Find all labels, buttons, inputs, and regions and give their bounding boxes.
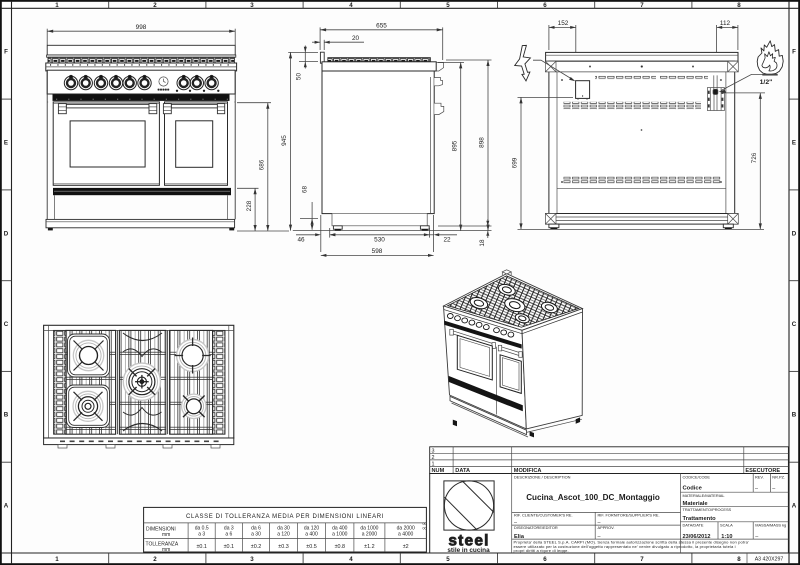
svg-text:MASSA/MASS kg: MASSA/MASS kg: [755, 523, 786, 528]
svg-text:152: 152: [558, 20, 569, 27]
svg-text:6: 6: [543, 556, 547, 563]
svg-text:F: F: [4, 49, 8, 56]
svg-text:±1.2: ±1.2: [364, 544, 374, 550]
svg-text:C: C: [4, 321, 9, 328]
svg-text:a 30: a 30: [251, 532, 261, 538]
svg-text:00: 00: [423, 522, 427, 526]
svg-text:–: –: [755, 486, 758, 492]
svg-text:1: 1: [432, 462, 435, 468]
svg-text:655: 655: [376, 22, 387, 29]
svg-text:±0.8: ±0.8: [335, 544, 345, 550]
svg-text:3: 3: [432, 448, 435, 454]
svg-text:2: 2: [153, 2, 157, 9]
svg-text:112: 112: [720, 20, 731, 27]
svg-text:1: 1: [55, 556, 59, 563]
svg-text:8: 8: [737, 556, 741, 563]
svg-text:mm: mm: [162, 532, 170, 538]
svg-text:a 3: a 3: [198, 532, 205, 538]
svg-text:mm: mm: [162, 547, 170, 553]
svg-text:7: 7: [640, 556, 644, 563]
svg-text:propri diritti a rigore di leg: propri diritti a rigore di legge.: [514, 548, 569, 553]
svg-text:8: 8: [737, 2, 741, 9]
svg-text:Codice: Codice: [683, 486, 703, 492]
svg-text:a 4000: a 4000: [398, 532, 414, 538]
svg-text:898: 898: [479, 137, 486, 148]
svg-text:A: A: [792, 503, 797, 510]
svg-text:±0.2: ±0.2: [251, 544, 261, 550]
svg-text:F: F: [792, 49, 796, 56]
svg-text:NR.PZ.: NR.PZ.: [772, 475, 785, 480]
svg-text:E: E: [4, 140, 8, 147]
svg-text:726: 726: [751, 152, 758, 163]
svg-text:68: 68: [302, 186, 309, 194]
svg-text:2: 2: [153, 556, 157, 563]
svg-text:±0.5: ±0.5: [306, 544, 316, 550]
svg-text:598: 598: [372, 248, 383, 255]
svg-text:REV.: REV.: [755, 475, 764, 480]
svg-text:686: 686: [259, 159, 266, 170]
svg-text:00: 00: [423, 527, 427, 531]
svg-text:DISEGNATORE/EDITOR: DISEGNATORE/EDITOR: [514, 525, 558, 530]
svg-text:530: 530: [374, 237, 385, 244]
svg-text:B: B: [792, 412, 797, 419]
svg-text:22: 22: [443, 237, 451, 244]
svg-text:228: 228: [246, 200, 253, 211]
svg-text:APPROV.: APPROV.: [598, 525, 615, 530]
svg-text:D: D: [4, 231, 9, 238]
svg-text:A: A: [4, 503, 9, 510]
svg-text:stile in cucina: stile in cucina: [447, 547, 490, 554]
svg-text:±0.1: ±0.1: [196, 544, 206, 550]
svg-text:895: 895: [451, 140, 458, 151]
svg-text:E: E: [792, 140, 796, 147]
svg-text:CLASSE DI TOLLERANZA MEDIA PER: CLASSE DI TOLLERANZA MEDIA PER DIMENSION…: [186, 514, 384, 520]
svg-text:7: 7: [640, 2, 644, 9]
svg-text:a 6: a 6: [225, 532, 232, 538]
svg-text:4: 4: [349, 2, 353, 9]
svg-text:C: C: [792, 321, 797, 328]
svg-text:6: 6: [543, 2, 547, 9]
svg-text:18: 18: [479, 239, 486, 247]
svg-text:a 120: a 120: [277, 532, 290, 538]
svg-text:1/2": 1/2": [760, 79, 773, 86]
svg-text:±2: ±2: [403, 544, 409, 550]
svg-text:46: 46: [297, 237, 305, 244]
svg-text:DESCRIZIONE / DESCRIPTION: DESCRIZIONE / DESCRIPTION: [514, 475, 571, 480]
svg-text:DATA/DATE: DATA/DATE: [683, 523, 704, 528]
svg-text:DIMENSIONI: DIMENSIONI: [146, 527, 176, 533]
svg-text:3: 3: [250, 2, 254, 9]
svg-text:a 400: a 400: [305, 532, 318, 538]
svg-text:4: 4: [349, 556, 353, 563]
svg-text:CODICE/CODE: CODICE/CODE: [683, 475, 711, 480]
svg-text:699: 699: [512, 157, 519, 168]
svg-text:B: B: [4, 412, 9, 419]
svg-text:D: D: [792, 231, 797, 238]
svg-text:±0.1: ±0.1: [224, 544, 234, 550]
svg-text:20: 20: [352, 35, 360, 42]
svg-text:TRATTAMENTO/PROCESS: TRATTAMENTO/PROCESS: [683, 507, 732, 512]
svg-text:2: 2: [432, 455, 435, 461]
svg-text:SCALA: SCALA: [720, 523, 733, 528]
svg-text:MATERIALE/MATERIAL: MATERIALE/MATERIAL: [683, 493, 726, 498]
svg-text:Trattamento: Trattamento: [683, 516, 717, 522]
svg-text:1: 1: [55, 2, 59, 9]
svg-text:a 2000: a 2000: [362, 532, 378, 538]
svg-text:998: 998: [136, 24, 147, 31]
svg-text:–: –: [772, 486, 775, 492]
svg-text:5: 5: [446, 556, 450, 563]
svg-text:–: –: [755, 534, 758, 540]
svg-text:A3 420X297: A3 420X297: [755, 557, 784, 563]
svg-text:3: 3: [250, 556, 254, 563]
svg-text:±0.3: ±0.3: [278, 544, 288, 550]
svg-text:a 1000: a 1000: [332, 532, 348, 538]
svg-text:5: 5: [446, 2, 450, 9]
svg-text:945: 945: [281, 135, 288, 146]
svg-text:50: 50: [296, 73, 303, 81]
svg-text:RIF. CLIENTE/CUSTOMER'S RE.: RIF. CLIENTE/CUSTOMER'S RE.: [514, 512, 573, 517]
svg-text:RIF. FORNITORE/SUPPLIER'S RE.: RIF. FORNITORE/SUPPLIER'S RE.: [598, 512, 660, 517]
svg-text:Cucina_Ascot_100_DC_Montaggio: Cucina_Ascot_100_DC_Montaggio: [526, 493, 660, 502]
